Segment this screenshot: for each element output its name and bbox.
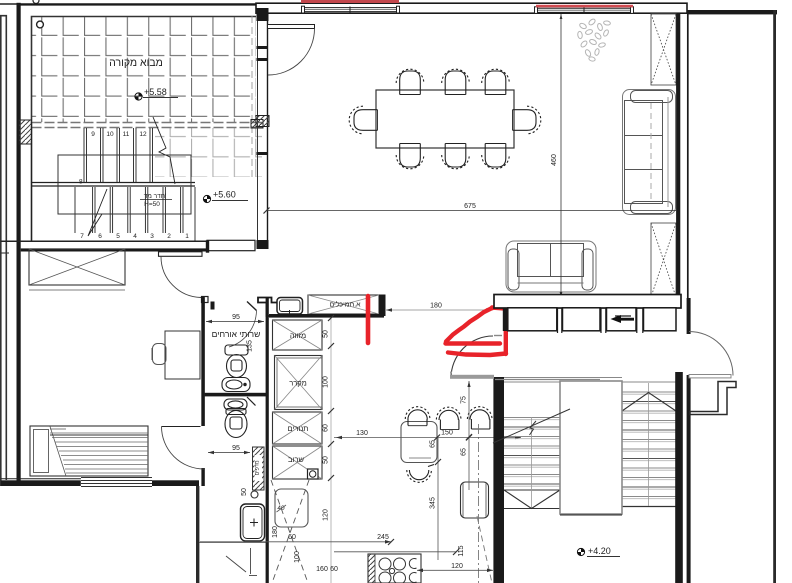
svg-text:60: 60 <box>323 424 330 432</box>
svg-text:H=50: H=50 <box>144 201 160 208</box>
svg-text:12: 12 <box>139 131 147 138</box>
svg-text:+5.58: +5.58 <box>144 87 167 97</box>
svg-text:65: 65 <box>430 440 437 448</box>
svg-text:75: 75 <box>461 396 468 404</box>
svg-text:א.חמיכלים: א.חמיכלים <box>329 301 361 309</box>
svg-text:מבוא מקורה: מבוא מקורה <box>109 57 163 69</box>
svg-text:160: 160 <box>316 566 328 573</box>
svg-text:מקרר: מקרר <box>289 379 307 388</box>
svg-text:180: 180 <box>272 526 279 538</box>
svg-text:50: 50 <box>323 456 330 464</box>
svg-text:10: 10 <box>106 131 114 138</box>
svg-text:100: 100 <box>323 376 330 388</box>
svg-text:7: 7 <box>80 233 84 240</box>
svg-text:+5.60: +5.60 <box>213 190 236 200</box>
svg-text:3: 3 <box>150 233 154 240</box>
svg-text:1: 1 <box>185 233 189 240</box>
svg-text:245: 245 <box>377 534 389 541</box>
svg-text:11: 11 <box>123 131 130 138</box>
svg-text:5: 5 <box>116 233 120 240</box>
svg-text:100: 100 <box>294 551 301 563</box>
svg-text:150: 150 <box>441 430 453 437</box>
svg-text:50: 50 <box>323 330 330 338</box>
svg-text:מדפים: מדפים <box>255 460 261 475</box>
svg-text:שרותי אורחים: שרותי אורחים <box>212 329 261 339</box>
svg-text:9: 9 <box>91 131 95 138</box>
svg-text:345: 345 <box>430 497 437 509</box>
svg-text:8: 8 <box>79 179 83 186</box>
svg-text:120: 120 <box>323 509 330 521</box>
svg-text:675: 675 <box>464 203 476 210</box>
svg-text:130: 130 <box>356 430 368 437</box>
svg-text:4: 4 <box>133 233 137 240</box>
svg-text:95: 95 <box>232 445 240 452</box>
svg-text:65: 65 <box>461 448 468 456</box>
svg-text:120: 120 <box>451 563 463 570</box>
svg-text:חדר מד': חדר מד' <box>144 193 166 200</box>
svg-text:180: 180 <box>430 303 442 310</box>
svg-text:95: 95 <box>232 314 240 321</box>
svg-text:460: 460 <box>551 154 558 166</box>
svg-text:מזווה: מזווה <box>290 331 306 340</box>
svg-text:60: 60 <box>288 534 296 541</box>
svg-text:50: 50 <box>241 488 248 496</box>
svg-text:60: 60 <box>330 566 338 573</box>
svg-text:6: 6 <box>98 233 102 240</box>
svg-text:115: 115 <box>458 545 465 556</box>
svg-text:+4.20: +4.20 <box>588 546 611 556</box>
svg-text:2: 2 <box>167 233 171 240</box>
svg-text:שרוב: שרוב <box>288 455 304 464</box>
svg-text:תנורים: תנורים <box>288 424 309 433</box>
